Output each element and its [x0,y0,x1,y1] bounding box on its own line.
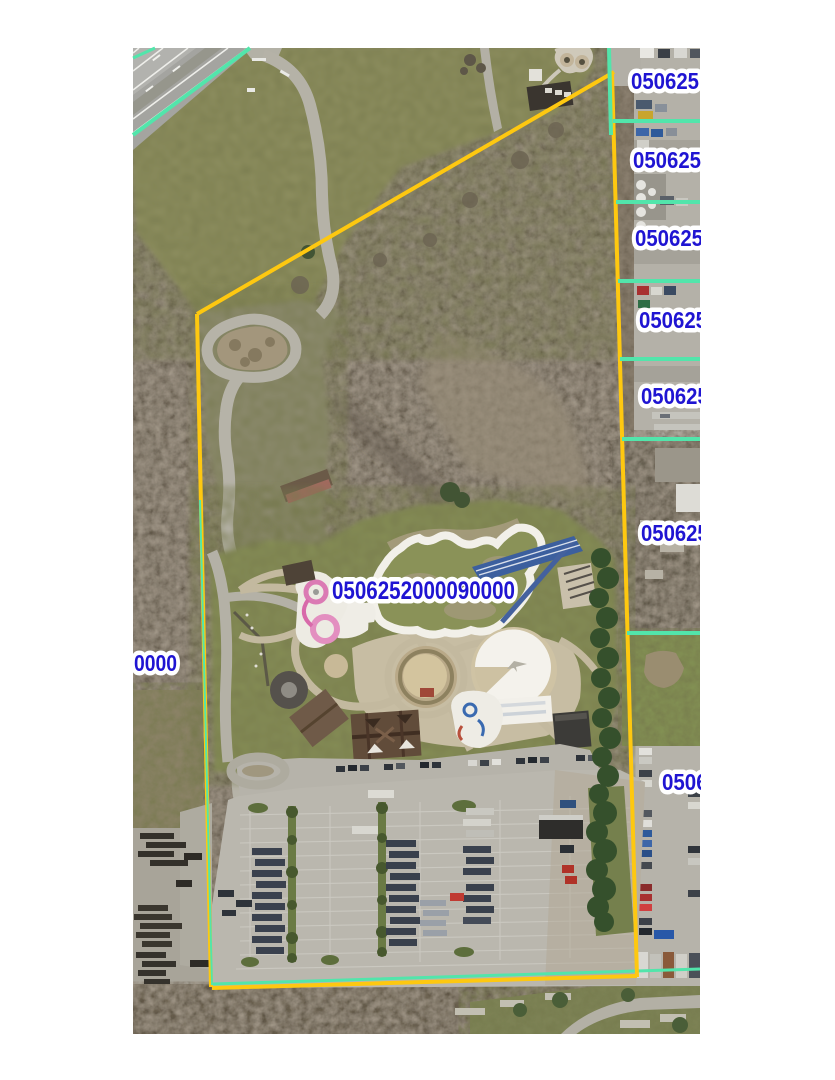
svg-text:050625: 050625 [633,147,701,173]
svg-text:0000: 0000 [134,650,177,676]
svg-text:050625: 050625 [631,68,699,94]
svg-text:050625: 050625 [635,225,703,251]
svg-text:050625: 050625 [639,307,707,333]
svg-text:0506252000090000: 0506252000090000 [332,577,515,605]
